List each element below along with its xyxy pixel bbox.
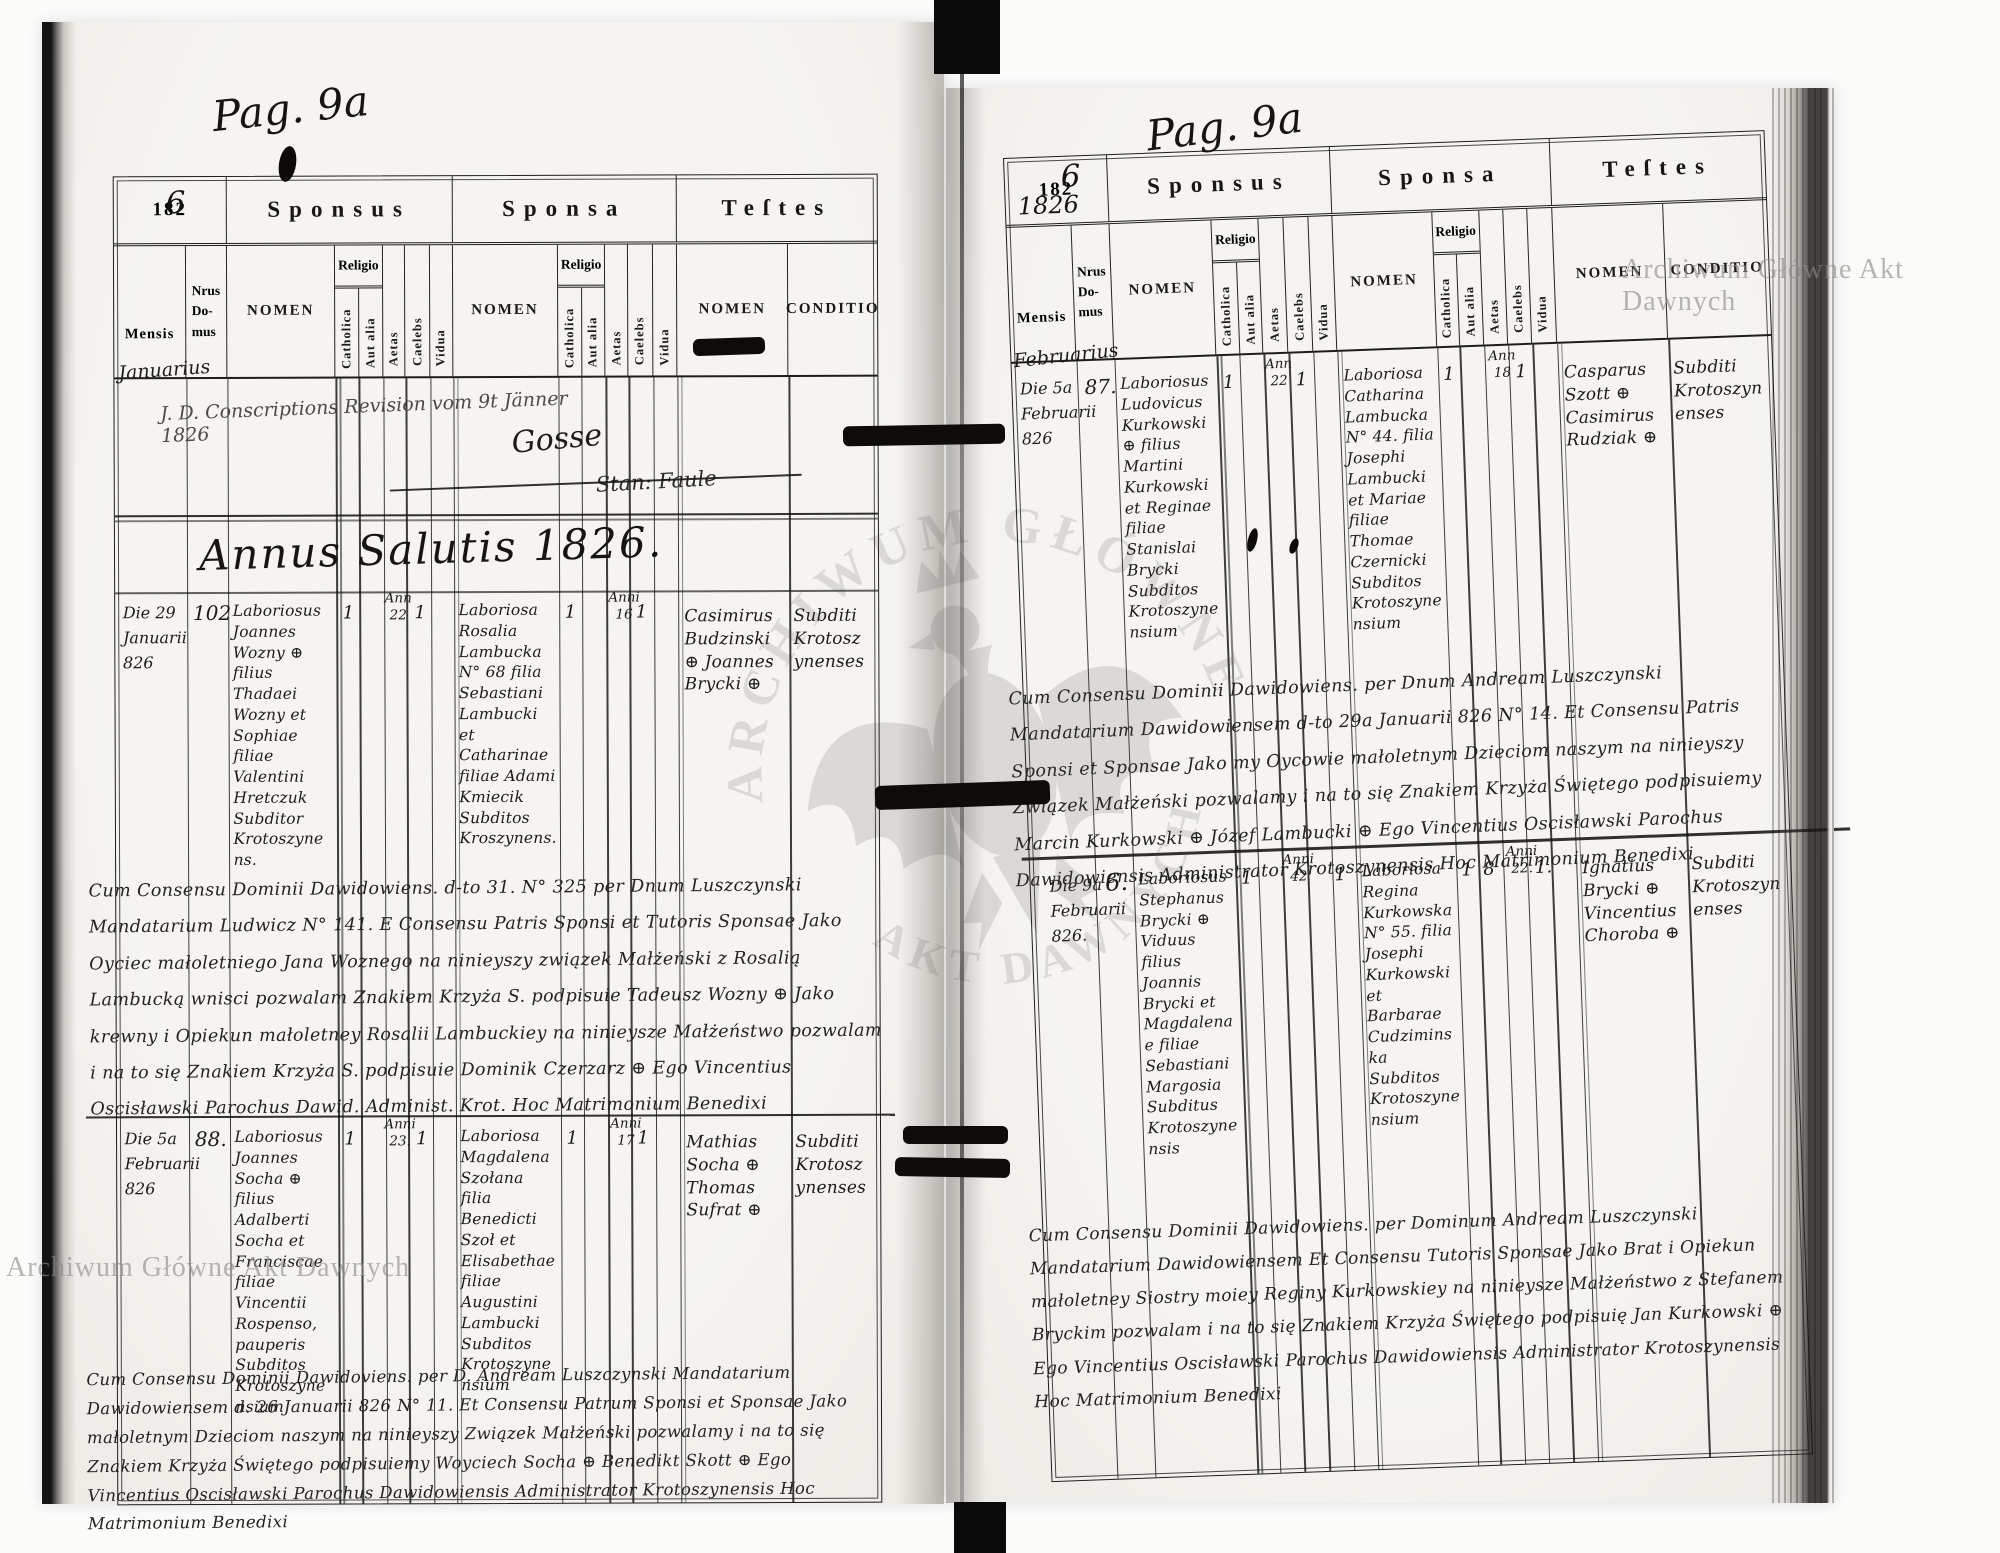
entry-sponsa-catholica: 1: [566, 1128, 578, 1149]
entry-sponsa-aut-alia-mark: 8: [1483, 858, 1495, 879]
col-header-religio-sponsus: Religio Catholica Aut alia: [1212, 219, 1264, 355]
col-header-caelebs-sponsa: Caelebs: [628, 244, 653, 375]
entry-sponsus-nomen: Laboriosus Joannes Wozny ⊕ filius Thadae…: [233, 601, 333, 871]
consent-note: Cum Consensu Dominii Dawidowiens. per Do…: [1028, 1194, 1817, 1419]
col-header-vidua-sponsa: Vidua: [652, 244, 677, 375]
col-header-catholica: Catholica: [558, 288, 582, 376]
col-header-catholica: Catholica: [1433, 254, 1460, 346]
entry-sponsa-caelebs: 1: [637, 1127, 649, 1148]
entry-testes-nomen: Ignatius Brycki ⊕ Vincentius Choroba ⊕: [1582, 854, 1684, 949]
annus-salutis-line: Annus Salutis 1826.: [198, 517, 663, 580]
col-header-nomen-testes: NOMEN: [677, 244, 789, 375]
col-header-nrus-domus: Nrus Do-mus: [1071, 224, 1114, 359]
section-sponsus: Sponsus: [1107, 147, 1333, 221]
archive-watermark-top-right: Archiwum Główne Akt Dawnych: [1622, 254, 2000, 318]
table-column-headers-left: Mensis Nrus Do-mus NOMEN Religio Catholi…: [114, 244, 877, 380]
col-header-religio-sponsus: Religio Catholica Aut alia: [335, 245, 383, 376]
section-sponsa: Sponsa: [1330, 139, 1552, 213]
col-header-aut-alia: Aut alia: [1237, 262, 1263, 354]
col-header-nomen-sponsa: NOMEN: [1332, 212, 1436, 350]
entry-sponsus-catholica: 1: [344, 1128, 356, 1149]
entry-house-number: 87.: [1084, 374, 1117, 399]
entry-sponsa-nomen: Laboriosa Rosalia Lambucka N° 68 filia S…: [459, 600, 558, 850]
section-sponsus: Sponsus: [227, 176, 453, 243]
col-header-aetas-sponsus: Aetas: [382, 245, 405, 376]
scanned-register-spread: Pag. 9a 182 6 Sponsus Sponsa Teſtes: [0, 0, 2000, 1553]
entry-sponsa-aetas: Ann 18: [1486, 347, 1519, 382]
entry-sponsa-caelebs: 1.: [1535, 856, 1553, 878]
col-header-nomen-sponsa: NOMEN: [453, 245, 559, 376]
entry-sponsa-aetas: Anni 22.: [1505, 843, 1538, 878]
entry-mensis: Die 29 Januarii 826: [123, 601, 184, 676]
col-header-aut-alia: Aut alia: [359, 288, 382, 376]
entry-sponsa-catholica: 1: [565, 602, 577, 623]
entry-sponsa-catholica: 1: [1461, 859, 1473, 880]
entry-sponsa-nomen: Laboriosa Catharina Lambucka N° 44. fili…: [1343, 362, 1446, 635]
col-header-religio-sponsa: Religio Catholica Aut alia: [558, 245, 606, 376]
entry-house-number: 88.: [195, 1127, 227, 1151]
col-header-caelebs-sponsus: Caelebs: [405, 245, 430, 376]
col-header-nomen-sponsus: NOMEN: [227, 246, 336, 377]
year-hand-repeat: 1826: [1017, 190, 1079, 220]
entry-sponsus-caelebs: 1: [414, 602, 426, 623]
section-testes: Teſtes: [677, 175, 877, 242]
entry-sponsa-nomen: Laboriosa Magdalena Szołana filia Benedi…: [460, 1126, 559, 1396]
entry-sponsus-catholica: 1: [1223, 372, 1235, 393]
col-header-nomen-sponsus: NOMEN: [1109, 220, 1216, 358]
binding-stitch: [843, 424, 1005, 447]
col-header-aetas-sponsa: Aetas: [605, 245, 628, 376]
table-section-header-left: 182 6 Sponsus Sponsa Teſtes: [114, 175, 877, 247]
entry-sponsus-caelebs: 1: [1295, 369, 1307, 390]
entry-sponsus-catholica: 1: [343, 602, 355, 623]
entry-mensis: Die 5a Februarii 826: [125, 1127, 186, 1202]
binding-tab-top: [934, 0, 1000, 74]
entry-sponsus-caelebs: 1: [416, 1128, 428, 1149]
entry-sponsus-aetas: Anni 23.: [384, 1116, 416, 1150]
entry-sponsa-nomen: Laboriosa Regina Kurkowska N° 55. filia …: [1361, 858, 1464, 1131]
year-digit-hand: 6: [166, 185, 186, 221]
entry-sponsa-catholica: 1: [1443, 364, 1455, 385]
archive-watermark-bottom-left: Archiwum Główne Akt Dawnych: [6, 1252, 410, 1284]
col-header-religio-sponsa: Religio Catholica Aut alia: [1432, 211, 1484, 347]
consent-note: Cum Consensu Dominii Dawidoviens. per D.…: [87, 1358, 890, 1540]
entry-testes-conditio: Subditi Krotoszynenses: [1673, 354, 1767, 426]
binding-stitch: [895, 1157, 1010, 1178]
col-header-catholica: Catholica: [1213, 263, 1240, 355]
col-header-mensis: Mensis: [1007, 226, 1076, 362]
col-header-aut-alia: Aut alia: [582, 288, 605, 376]
entry-testes-nomen: Casparus Szott ⊕ Casimirus Rudziak ⊕: [1564, 358, 1666, 453]
binding-tab-bottom: [954, 1502, 1006, 1553]
entry-sponsus-aetas: Ann 22: [1262, 355, 1295, 390]
col-header-vidua-sponsus: Vidua: [430, 245, 453, 376]
entry-sponsa-caelebs: 1: [1515, 361, 1527, 382]
entry-testes-conditio: Subditi Krotoszynenses: [795, 1131, 872, 1200]
col-header-conditio: CONDITIO: [788, 244, 877, 375]
page-number-left: Pag. 9a: [210, 76, 371, 141]
entry-house-number: 102: [193, 601, 231, 625]
year-cell: 182 6: [114, 177, 227, 243]
revision-signature: Gosse: [510, 418, 603, 461]
binding-stitch: [693, 337, 766, 357]
entry-sponsus-aetas: Ann 22: [382, 590, 414, 624]
binding-stitch: [903, 1126, 1008, 1144]
col-header-catholica: Catholica: [335, 288, 359, 376]
entry-testes-nomen: Mathias Socha ⊕ Thomas Sufrat ⊕: [686, 1131, 782, 1222]
section-sponsa: Sponsa: [452, 175, 677, 242]
section-testes: Teſtes: [1549, 131, 1766, 205]
col-header-aut-alia: Aut alia: [1457, 254, 1483, 346]
year-cell: 182 6 1826: [1004, 155, 1109, 225]
entry-testes-conditio: Subditi Krotoszynenses: [1691, 850, 1785, 922]
